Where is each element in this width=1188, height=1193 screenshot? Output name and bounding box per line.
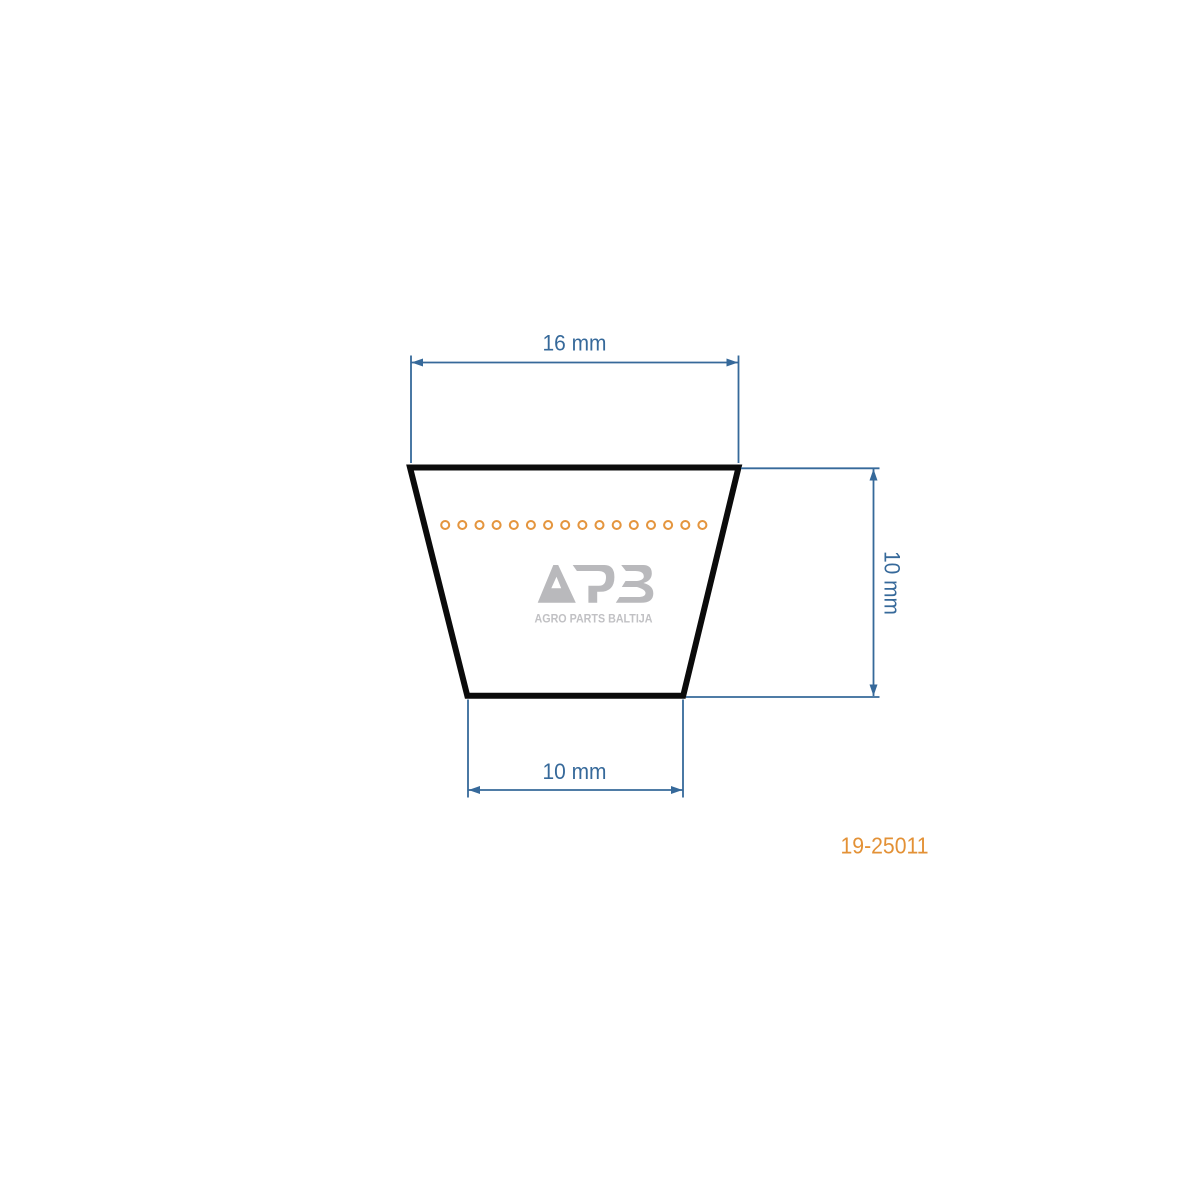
svg-text:19-25011: 19-25011 — [841, 833, 929, 859]
svg-text:10 mm: 10 mm — [880, 551, 905, 615]
svg-text:10 mm: 10 mm — [543, 759, 607, 784]
svg-text:AGRO PARTS BALTIJA: AGRO PARTS BALTIJA — [535, 612, 653, 626]
svg-text:16 mm: 16 mm — [543, 331, 607, 356]
